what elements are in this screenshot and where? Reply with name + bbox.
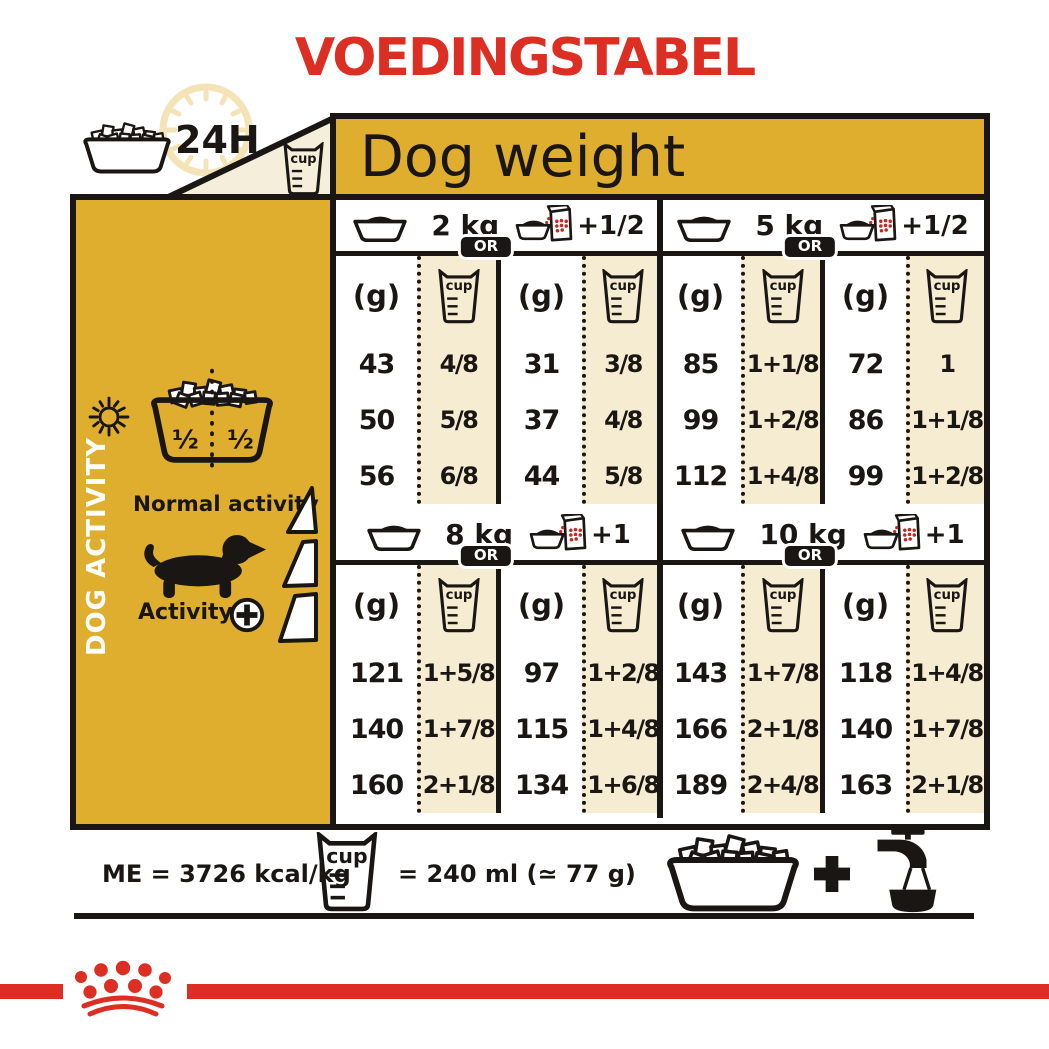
grams-header: (g) <box>660 256 741 336</box>
grams-header: (g) <box>660 565 741 645</box>
cup-value: 1+4/8 <box>910 645 984 701</box>
half-right-label: ½ <box>227 426 254 456</box>
feeding-table-page: VOEDINGSTABEL 24H cup Dog weight <box>0 0 1049 1049</box>
cup-value: 1+1/8 <box>745 336 820 392</box>
bowl-pouch-icon <box>513 205 575 247</box>
activity-label: Activity <box>138 600 233 625</box>
cup-value: 3/8 <box>586 336 660 392</box>
cup-value: 1 <box>910 336 984 392</box>
cup-value: 4/8 <box>586 392 660 448</box>
empty-bowl-icon <box>351 210 409 242</box>
svg-text:cup: cup <box>610 588 637 603</box>
cup-value: 6/8 <box>421 448 496 504</box>
or-badge: OR <box>782 543 838 569</box>
cup-value: 1+4/8 <box>586 701 660 757</box>
grams-value: 43 <box>336 336 417 392</box>
grams-value: 86 <box>825 392 906 448</box>
empty-bowl-icon <box>679 519 737 551</box>
grams-value: 72 <box>825 336 906 392</box>
section-10kg-header: 10 kg +1 OR <box>660 509 984 565</box>
svg-text:cup: cup <box>934 588 961 603</box>
activity-level-triangles-icon <box>276 484 320 646</box>
cup-value: 2+1/8 <box>421 757 496 813</box>
empty-bowl-icon <box>675 210 733 242</box>
svg-text:cup: cup <box>934 279 961 294</box>
plus-circle-icon <box>228 596 266 634</box>
grams-value: 56 <box>336 448 417 504</box>
cup-value: 1+7/8 <box>910 701 984 757</box>
cup-icon: cup <box>602 269 644 324</box>
kibble-bowl-icon <box>658 834 808 912</box>
cup-icon: cup <box>926 269 968 324</box>
section-2kg-header: 2 kg +1/2 OR <box>336 200 660 256</box>
or-badge: OR <box>458 234 514 260</box>
cup-value: 5/8 <box>586 448 660 504</box>
wet-add-label: +1/2 <box>901 211 968 241</box>
section-8kg: 8 kg +1 OR (g) 121 140 160 cup 1+5/8 <box>336 509 660 818</box>
cup-icon: cup <box>762 578 804 633</box>
page-title: VOEDINGSTABEL <box>0 28 1049 88</box>
section-5kg-grid: (g) 85 99 112 cup 1+1/8 1+2/8 1+4/8 (g) <box>660 256 984 504</box>
grams-header: (g) <box>501 256 582 336</box>
section-8kg-grid: (g) 121 140 160 cup 1+5/8 1+7/8 2+1/8 (g… <box>336 565 660 813</box>
svg-text:cup: cup <box>290 152 316 167</box>
dachshund-icon <box>140 528 268 602</box>
wet-add-label: +1 <box>591 520 631 550</box>
dog-activity-label: DOG ACTIVITY <box>82 437 112 656</box>
cup-icon: cup <box>762 269 804 324</box>
section-5kg: 5 kg +1/2 OR (g) 85 99 112 cup 1+1/8 <box>660 200 984 509</box>
bowl-pouch-icon <box>527 514 589 556</box>
section-5kg-header: 5 kg +1/2 OR <box>660 200 984 256</box>
svg-text:cup: cup <box>769 279 796 294</box>
footer-divider <box>74 913 974 919</box>
empty-bowl-icon <box>365 519 423 551</box>
cup-equivalent-label: = 240 ml (≃ 77 g) <box>398 860 636 888</box>
cup-icon: cup <box>283 142 324 196</box>
grams-value: 31 <box>501 336 582 392</box>
section-2kg: 2 kg +1/2 OR (g) 43 50 56 cup 4/8 <box>336 200 660 509</box>
grams-value: 37 <box>501 392 582 448</box>
grams-value: 85 <box>660 336 741 392</box>
grams-value: 163 <box>825 757 906 813</box>
wet-add-label: +1 <box>925 520 965 550</box>
section-10kg-grid: (g) 143 166 189 cup 1+7/8 2+1/8 2+4/8 (g… <box>660 565 984 813</box>
svg-text:cup: cup <box>769 588 796 603</box>
cup-icon: cup <box>926 578 968 633</box>
svg-text:cup: cup <box>610 279 637 294</box>
section-8kg-header: 8 kg +1 OR <box>336 509 660 565</box>
cup-icon: cup <box>438 269 480 324</box>
royal-canin-crown-logo <box>64 948 184 1018</box>
sun-icon <box>82 390 136 444</box>
half-half-bowl-icon: ½ ½ <box>136 368 288 472</box>
section-10kg: 10 kg +1 OR (g) 143 166 189 cup 1+7/8 <box>660 509 984 818</box>
grams-value: 115 <box>501 701 582 757</box>
cup-value: 1+2/8 <box>586 645 660 701</box>
grams-value: 112 <box>660 448 741 504</box>
grams-header: (g) <box>825 256 906 336</box>
moon-icon <box>280 390 322 438</box>
cup-value: 1+1/8 <box>910 392 984 448</box>
grams-value: 118 <box>825 645 906 701</box>
bowl-pouch-icon <box>837 205 899 247</box>
cup-value: 2+1/8 <box>745 701 820 757</box>
feeding-table: 2 kg +1/2 OR (g) 43 50 56 cup 4/8 <box>330 200 990 830</box>
dog-weight-label: Dog weight <box>360 124 685 190</box>
cup-value: 5/8 <box>421 392 496 448</box>
cup-value: 1+6/8 <box>586 757 660 813</box>
grams-value: 50 <box>336 392 417 448</box>
grams-header: (g) <box>336 256 417 336</box>
cup-value: 2+4/8 <box>745 757 820 813</box>
grams-value: 143 <box>660 645 741 701</box>
water-tap-icon <box>854 824 952 916</box>
cup-value: 1+2/8 <box>745 392 820 448</box>
grams-value: 160 <box>336 757 417 813</box>
or-badge: OR <box>782 234 838 260</box>
cup-value: 4/8 <box>421 336 496 392</box>
grams-value: 97 <box>501 645 582 701</box>
grams-header: (g) <box>501 565 582 645</box>
bowl-pouch-icon <box>861 514 923 556</box>
grams-value: 121 <box>336 645 417 701</box>
grams-value: 189 <box>660 757 741 813</box>
grams-value: 134 <box>501 757 582 813</box>
svg-text:cup: cup <box>445 588 472 603</box>
grams-header: (g) <box>336 565 417 645</box>
grams-value: 99 <box>660 392 741 448</box>
cup-value: 1+7/8 <box>745 645 820 701</box>
red-band-left <box>0 984 63 999</box>
grams-header: (g) <box>825 565 906 645</box>
grams-value: 140 <box>336 701 417 757</box>
dog-weight-header: Dog weight <box>330 113 990 200</box>
energy-value-label: ME = 3726 kcal/kg <box>102 860 351 888</box>
or-badge: OR <box>458 543 514 569</box>
grams-value: 99 <box>825 448 906 504</box>
wet-add-label: +1/2 <box>577 211 644 241</box>
cup-value: 2+1/8 <box>910 757 984 813</box>
cup-value: 1+7/8 <box>421 701 496 757</box>
plus-icon <box>814 856 850 892</box>
cup-value: 1+2/8 <box>910 448 984 504</box>
red-band-right <box>187 984 1049 999</box>
cup-value: 1+4/8 <box>745 448 820 504</box>
grams-value: 166 <box>660 701 741 757</box>
cup-icon: cup <box>316 832 378 912</box>
cup-value: 1+5/8 <box>421 645 496 701</box>
cup-icon: cup <box>438 578 480 633</box>
svg-text:cup: cup <box>326 844 367 868</box>
grams-value: 44 <box>501 448 582 504</box>
svg-text:cup: cup <box>445 279 472 294</box>
cup-icon: cup <box>602 578 644 633</box>
table-center-divider <box>657 200 663 818</box>
section-2kg-grid: (g) 43 50 56 cup 4/8 5/8 6/8 (g) 31 <box>336 256 660 504</box>
grams-value: 140 <box>825 701 906 757</box>
half-left-label: ½ <box>172 426 199 456</box>
